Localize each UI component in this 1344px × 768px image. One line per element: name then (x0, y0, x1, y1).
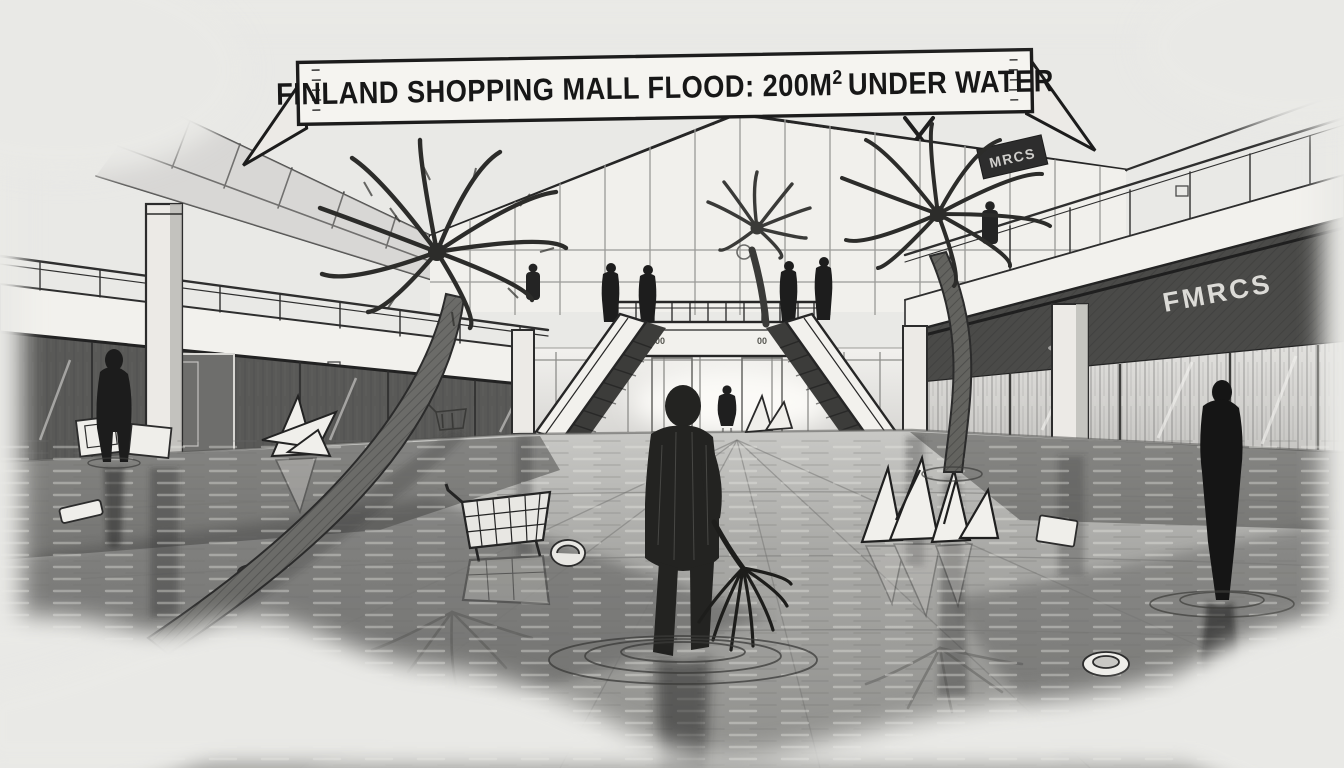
bridge-mark-right: 00 (757, 336, 767, 346)
left-wader-reflection (104, 466, 124, 548)
flooded-mall-drawing: MRCS FMRCS (0, 0, 1344, 768)
sketch-illustration: MRCS FMRCS (0, 0, 1344, 768)
banner-title-suffix: UNDER WATER (848, 65, 1054, 103)
floating-box (129, 424, 172, 458)
banner-title-superscript: 2 (832, 66, 843, 88)
